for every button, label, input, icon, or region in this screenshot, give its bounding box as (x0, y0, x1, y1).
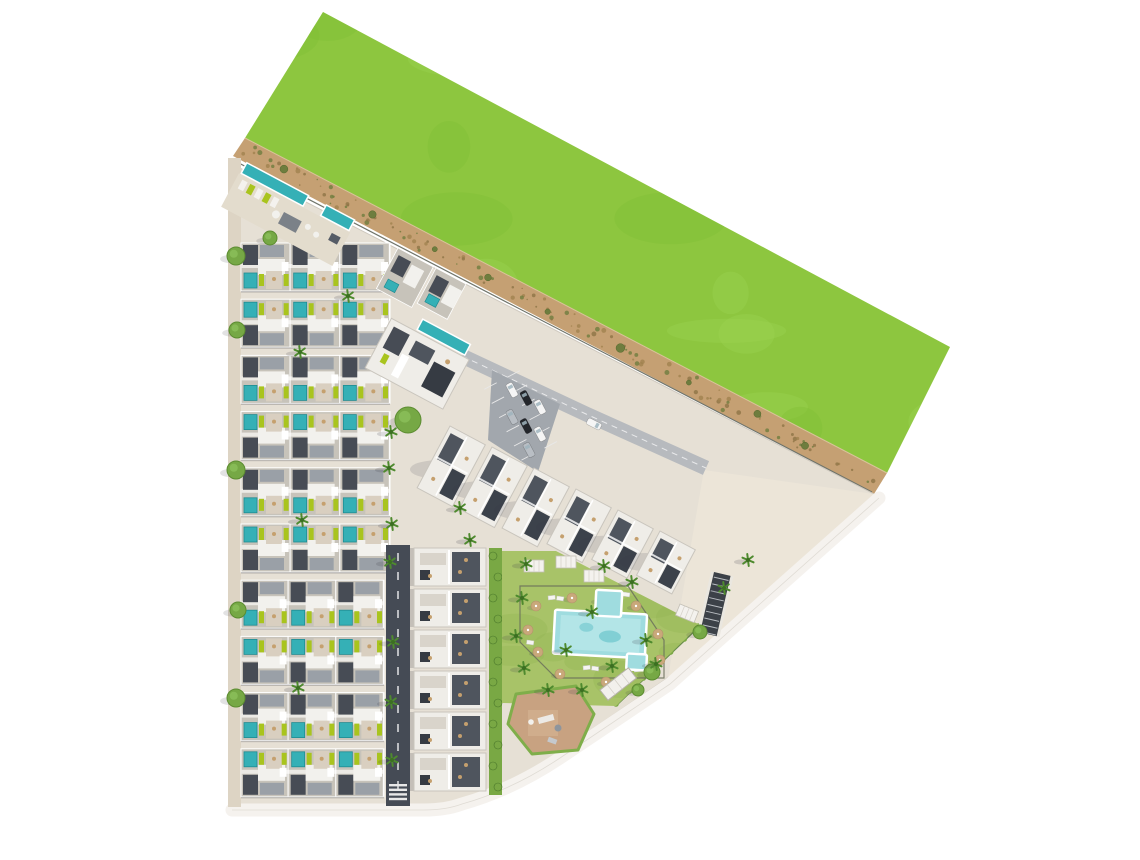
palm-crown (722, 586, 726, 590)
grass-blob (428, 121, 471, 173)
terrace-furniture (272, 420, 276, 424)
private-pool (292, 752, 305, 767)
roof-furniture (458, 693, 462, 697)
sand-speckle (416, 233, 418, 235)
sand-speckle (727, 397, 732, 402)
parasol-tip (571, 597, 573, 599)
garden-pergola (556, 556, 576, 568)
unit-divider (289, 243, 290, 291)
sand-speckle (345, 206, 348, 209)
sunbed-strip (284, 416, 289, 428)
garden-pergola (584, 570, 604, 582)
palm-crown (644, 638, 648, 642)
sand-speckle (458, 256, 460, 258)
townhouse-row (241, 749, 384, 799)
unit-dark-roof (338, 775, 353, 795)
unit-deck (452, 593, 480, 623)
row-shadow (241, 797, 384, 799)
roof-furniture (428, 574, 432, 578)
unit-dark-roof (293, 438, 308, 458)
stair-landing (375, 712, 382, 721)
grass-blob (411, 12, 464, 70)
sand-speckle (316, 179, 318, 181)
terrace-furniture (272, 644, 276, 648)
unit-dark-roof (342, 470, 357, 490)
unit-terrace (420, 758, 446, 770)
private-pool (244, 723, 257, 738)
sand-speckle (520, 296, 524, 300)
sand-speckle (535, 306, 537, 308)
terrace-furniture (322, 277, 326, 281)
private-pool (244, 415, 257, 430)
palm-crown (630, 580, 634, 584)
unit-dark-roof (291, 695, 306, 715)
unit-dark-roof (342, 245, 357, 265)
palm-crown (346, 294, 350, 298)
crosswalk-bar (389, 784, 407, 786)
unit-gray-roof (308, 582, 332, 594)
sunbed-strip (259, 640, 264, 652)
sunbed-strip (329, 640, 334, 652)
unit-parapet (448, 755, 450, 789)
sand-speckle (329, 185, 333, 189)
sand-speckle (479, 275, 484, 280)
sand-speckle (736, 410, 741, 415)
terrace-furniture (367, 757, 371, 761)
tree-highlight (695, 627, 701, 633)
unit-shadow (410, 630, 414, 668)
stair-landing (381, 487, 388, 496)
crosswalk-bar (389, 793, 407, 795)
grass-blob (745, 131, 799, 175)
unit-terrace (420, 594, 446, 606)
sand-speckle (521, 288, 522, 289)
sand-speckle (812, 446, 814, 448)
unit-gray-roof (308, 783, 332, 795)
sunbed-strip (354, 640, 359, 652)
private-pool (339, 639, 352, 654)
roof-furniture (458, 734, 462, 738)
roof-furniture (464, 640, 468, 644)
palm-crown (468, 538, 472, 542)
unit-parapet (448, 591, 450, 625)
unit-terrace (420, 635, 446, 647)
sand-speckle (277, 162, 281, 166)
private-pool (294, 273, 307, 288)
grass-blob (850, 197, 971, 224)
roof-furniture (458, 652, 462, 656)
terrace-furniture (272, 307, 276, 311)
sand-speckle (303, 173, 306, 176)
sand-speckle (362, 214, 365, 217)
parasol-tip (635, 605, 637, 607)
townhouse-row (241, 299, 390, 349)
sunbed-strip (309, 416, 314, 428)
unit-divider (287, 580, 288, 628)
sand-speckle (442, 256, 444, 258)
townhouse-row (241, 693, 384, 743)
hedge-tree (489, 720, 497, 728)
sand-speckle (532, 294, 536, 298)
road-dash (397, 591, 399, 599)
sand-speckle (330, 195, 334, 199)
sun-lounger (583, 665, 590, 670)
sand-speckle (424, 242, 427, 245)
roof-furniture (464, 763, 468, 767)
sunbed-strip (284, 499, 289, 511)
sand-speckle (694, 390, 698, 394)
terrace-furniture (367, 727, 371, 731)
sand-speckle (793, 440, 795, 442)
unit-deck (452, 675, 480, 705)
sunbed-strip (259, 416, 264, 428)
sunbed-strip (284, 386, 289, 398)
sunbed-strip (309, 528, 314, 540)
palm-crown (546, 688, 550, 692)
private-pool (244, 302, 257, 317)
sunbed-strip (383, 499, 388, 511)
private-pool (244, 273, 257, 288)
sand-speckle (587, 334, 590, 337)
sand-speckle (640, 359, 645, 364)
private-pool (339, 610, 352, 625)
grass-blob (719, 314, 775, 354)
row-shadow (241, 572, 390, 574)
unit-divider (289, 412, 290, 460)
private-pool (292, 639, 305, 654)
sand-speckle (625, 349, 627, 351)
unit-dark-roof (338, 582, 353, 602)
private-pool (343, 385, 356, 400)
unit-gray-roof (260, 783, 284, 795)
sunbed-strip (333, 386, 338, 398)
sand-speckle (512, 286, 515, 289)
roof-furniture (458, 611, 462, 615)
roof-furniture (464, 558, 468, 562)
hedge-tree (489, 552, 497, 560)
palm-crown (389, 700, 393, 704)
grass-blob (855, 126, 955, 155)
terrace-furniture (371, 307, 375, 311)
unit-dark-roof (293, 325, 308, 345)
sand-speckle (462, 257, 465, 260)
sand-speckle (241, 152, 245, 156)
roof-furniture (458, 570, 462, 574)
sand-speckle (632, 358, 634, 360)
private-pool (343, 498, 356, 513)
sunbed-strip (307, 753, 312, 765)
sunbed-strip (383, 416, 388, 428)
townhouse-row (241, 468, 390, 518)
palm-crown (390, 522, 394, 526)
stair-landing (280, 655, 287, 664)
row-shadow (241, 741, 384, 743)
palm-crown (610, 664, 614, 668)
sand-speckle (330, 203, 332, 205)
sand-speckle (695, 376, 699, 380)
strip-bush (432, 247, 437, 252)
sunbed-strip (259, 724, 264, 736)
sand-speckle (269, 158, 273, 162)
sand-speckle (412, 239, 416, 243)
stair-landing (327, 655, 334, 664)
unit-shadow (410, 753, 414, 791)
unit-gray-roof (359, 245, 383, 257)
terrace-furniture (272, 389, 276, 393)
stair-landing (331, 374, 338, 383)
unit-parapet (448, 673, 450, 707)
roof-furniture (428, 738, 432, 742)
palm-crown (746, 558, 750, 562)
sunbed-strip (333, 499, 338, 511)
unit-dark-roof (243, 550, 258, 570)
play-dome (528, 719, 534, 725)
terrace-furniture (320, 614, 324, 618)
unit-dark-roof (338, 695, 353, 715)
private-pool (294, 527, 307, 542)
sunbed-strip (358, 528, 363, 540)
unit-terrace (420, 717, 446, 729)
palm-crown (298, 350, 302, 354)
lower-apartment-unit (410, 753, 486, 791)
lower-apartment-unit (410, 589, 486, 627)
private-pool (294, 302, 307, 317)
sunbed-strip (259, 753, 264, 765)
sunbed-strip (358, 303, 363, 315)
unit-gray-roof (260, 357, 284, 369)
unit-dark-roof (293, 357, 308, 377)
sand-speckle (577, 324, 581, 328)
sand-speckle (574, 313, 576, 315)
stair-landing (327, 599, 334, 608)
palm-crown (389, 430, 393, 434)
sunbed-strip (307, 724, 312, 736)
private-pool (343, 273, 356, 288)
unit-dark-roof (293, 550, 308, 570)
stair-landing (331, 487, 338, 496)
unit-gray-roof (355, 783, 379, 795)
sand-speckle (667, 362, 672, 367)
sand-speckle (835, 462, 838, 465)
terrace-furniture (320, 644, 324, 648)
terrace-furniture (272, 727, 276, 731)
terrace-furniture (367, 644, 371, 648)
hedge-tree (489, 762, 497, 770)
unit-gray-roof (310, 446, 334, 458)
sand-speckle (721, 408, 725, 412)
stair-landing (282, 374, 289, 383)
stair-landing (282, 487, 289, 496)
sand-speckle (271, 165, 274, 168)
strip-bush (801, 442, 808, 449)
terrace-furniture (322, 420, 326, 424)
private-pool (343, 415, 356, 430)
lower-apartment-unit (410, 671, 486, 709)
sand-speckle (725, 404, 729, 408)
roof-furniture (428, 656, 432, 660)
private-pool (343, 302, 356, 317)
tree-highlight (230, 250, 238, 258)
unit-deck (452, 552, 480, 582)
road-dash (397, 686, 399, 694)
unit-divider (383, 749, 384, 797)
grass-blob (468, 54, 582, 92)
sand-speckle (576, 329, 580, 333)
sand-speckle (565, 311, 569, 315)
sand-speckle (551, 319, 553, 321)
unit-gray-roof (260, 695, 284, 707)
parasol-tip (527, 629, 529, 631)
sand-speckle (871, 479, 875, 483)
sand-speckle (718, 389, 720, 391)
hedge-tree (494, 657, 502, 665)
parasol-tip (605, 681, 607, 683)
sand-speckle (390, 222, 392, 224)
unit-dark-roof (243, 357, 258, 377)
grass-blob (595, 0, 647, 55)
terrace-furniture (322, 307, 326, 311)
sunbed-strip (383, 386, 388, 398)
strip-bush (280, 165, 288, 173)
sand-speckle (511, 295, 515, 299)
palm-crown (522, 666, 526, 670)
unit-divider (289, 468, 290, 516)
unit-gray-roof (260, 558, 284, 570)
road-dash (397, 610, 399, 618)
unit-gray-roof (260, 670, 284, 682)
stair-landing (331, 431, 338, 440)
site-plan-canvas (0, 0, 1140, 860)
tree-highlight (230, 464, 238, 472)
sand-speckle (867, 480, 870, 483)
unit-divider (389, 468, 390, 516)
sunbed-strip (358, 274, 363, 286)
road-dash (397, 648, 399, 656)
roof-furniture (464, 722, 468, 726)
unit-deck (452, 757, 480, 787)
private-pool (294, 415, 307, 430)
palm-crown (387, 466, 391, 470)
plaza-surface (668, 470, 874, 678)
stair-landing (375, 768, 382, 777)
terrace-furniture (320, 757, 324, 761)
sand-speckle (322, 193, 326, 197)
unit-shadow (410, 589, 414, 627)
palm-crown (564, 648, 568, 652)
sunbed-strip (309, 386, 314, 398)
sand-speckle (591, 331, 596, 336)
terrace-furniture (272, 757, 276, 761)
unit-gray-roof (260, 446, 284, 458)
sand-speckle (368, 219, 370, 221)
unit-dark-roof (342, 325, 357, 345)
unit-gray-roof (260, 245, 284, 257)
hedge-tree (494, 573, 502, 581)
unit-divider (339, 299, 340, 347)
private-pool (339, 752, 352, 767)
unit-shadow (410, 712, 414, 750)
crosswalk-bar (389, 798, 407, 800)
private-pool (292, 610, 305, 625)
sand-speckle (418, 249, 421, 252)
sunbed-strip (309, 303, 314, 315)
roof-furniture (428, 615, 432, 619)
unit-divider (287, 693, 288, 741)
private-pool (294, 498, 307, 513)
road-dash (397, 667, 399, 675)
unit-gray-roof (355, 695, 379, 707)
sunbed-strip (284, 528, 289, 540)
terrace-furniture (371, 389, 375, 393)
hedge-strip (489, 548, 502, 795)
corner-plaza (668, 470, 874, 678)
sand-speckle (809, 448, 812, 451)
strip-bush (616, 344, 625, 353)
sand-speckle (543, 297, 546, 300)
sand-speckle (791, 433, 794, 436)
stair-landing (331, 318, 338, 327)
sand-speckle (765, 428, 769, 432)
stair-landing (282, 431, 289, 440)
unit-dark-roof (291, 662, 306, 682)
unit-divider (335, 636, 336, 684)
grass-blob (908, 398, 983, 444)
terrace-furniture (322, 502, 326, 506)
terrace-furniture (320, 727, 324, 731)
unit-divider (383, 693, 384, 741)
grass-blob (614, 192, 727, 244)
sunbed-strip (309, 499, 314, 511)
terrace-furniture (322, 532, 326, 536)
pool-extension (626, 653, 647, 670)
unit-divider (289, 524, 290, 572)
roof-furniture (464, 599, 468, 603)
lower-apartment-unit (410, 548, 486, 586)
sand-speckle (595, 327, 600, 332)
unit-parapet (448, 714, 450, 748)
sand-speckle (796, 446, 798, 448)
unit-dark-roof (291, 582, 306, 602)
terrace-furniture (272, 277, 276, 281)
stair-landing (375, 655, 382, 664)
hedge-tree (494, 783, 502, 791)
road-dash (397, 743, 399, 751)
sunbed-strip (383, 303, 388, 315)
unit-divider (335, 693, 336, 741)
sand-speckle (253, 146, 257, 150)
stair-landing (282, 318, 289, 327)
sunbed-strip (358, 499, 363, 511)
sunbed-strip (284, 274, 289, 286)
grass-blob (408, 41, 507, 76)
stair-landing (280, 599, 287, 608)
sand-speckle (295, 168, 300, 173)
sand-speckle (678, 375, 681, 378)
stair-landing (327, 768, 334, 777)
sunbed-strip (259, 499, 264, 511)
strip-bush (545, 309, 550, 314)
roof-furniture (458, 775, 462, 779)
sand-speckle (610, 335, 613, 338)
stair-landing (331, 543, 338, 552)
road-dash (397, 724, 399, 732)
townhouse-row (241, 580, 384, 630)
townhouse-row (241, 412, 390, 462)
private-pool (294, 385, 307, 400)
sunbed-strip (259, 386, 264, 398)
row-shadow (241, 403, 390, 405)
road-dash (397, 553, 399, 561)
